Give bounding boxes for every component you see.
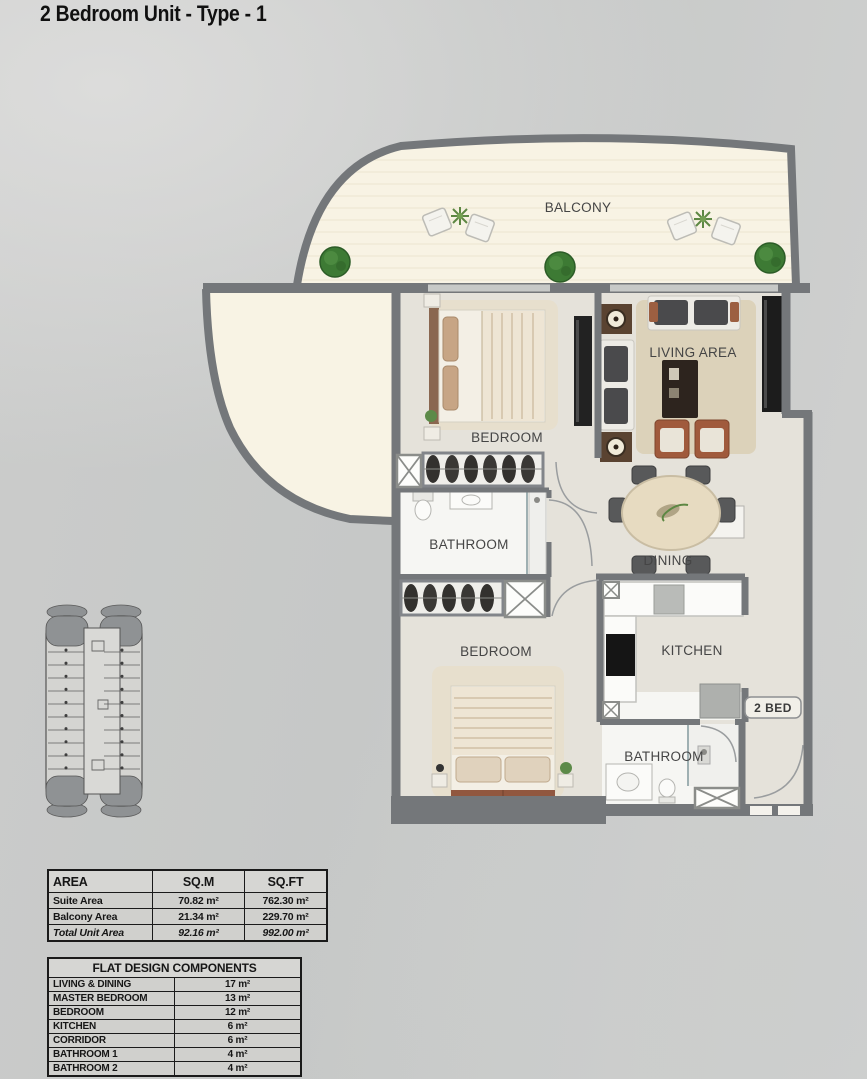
- side-table-lamp: [600, 304, 632, 334]
- row-label: Total Unit Area: [48, 925, 153, 942]
- component-value: 6 m²: [175, 1020, 302, 1034]
- kitchen-label: KITCHEN: [661, 643, 722, 658]
- component-value: 4 m²: [175, 1062, 302, 1077]
- component-label: LIVING & DINING: [48, 978, 175, 992]
- component-label: BATHROOM 2: [48, 1062, 175, 1077]
- sqm-header: SQ.M: [153, 870, 245, 893]
- wardrobe: [401, 581, 503, 615]
- row-sqft: 762.30 m²: [245, 893, 328, 909]
- floor-plan-page: { "title": "2 Bedroom Unit - Type - 1", …: [0, 0, 867, 1079]
- living-area: LIVING AREA: [600, 296, 782, 462]
- stove: [606, 634, 635, 676]
- table-row: MASTER BEDROOM 13 m²: [48, 992, 301, 1006]
- row-sqm: 92.16 m²: [153, 925, 245, 942]
- component-value: 4 m²: [175, 1048, 302, 1062]
- component-value: 12 m²: [175, 1006, 302, 1020]
- unit-tag: 2 BED: [745, 697, 801, 718]
- nightstand: [424, 427, 440, 440]
- nightstand: [558, 774, 573, 787]
- unit-tag-label: 2 BED: [754, 701, 792, 715]
- coffee-table: [662, 360, 698, 418]
- area-header: AREA: [48, 870, 153, 893]
- plant-icon: [451, 207, 469, 225]
- component-value: 17 m²: [175, 978, 302, 992]
- plant-icon: [694, 210, 712, 228]
- table-row: CORRIDOR 6 m²: [48, 1034, 301, 1048]
- bathroom2-label: BATHROOM: [624, 749, 703, 764]
- component-label: KITCHEN: [48, 1020, 175, 1034]
- armchair: [655, 420, 689, 458]
- components-title: FLAT DESIGN COMPONENTS: [48, 958, 301, 978]
- key-plan: [46, 605, 142, 817]
- row-label: Suite Area: [48, 893, 153, 909]
- plant-icon: [560, 762, 572, 774]
- bedroom-2: BEDROOM: [432, 644, 573, 803]
- window-strip: [610, 285, 778, 292]
- row-sqm: 21.34 m²: [153, 909, 245, 925]
- bedroom2-label: BEDROOM: [460, 644, 532, 659]
- toilet: [659, 779, 675, 797]
- bed: [451, 686, 555, 803]
- master-bedroom-label: BEDROOM: [471, 430, 543, 445]
- entry-threshold: [750, 806, 772, 815]
- component-label: BEDROOM: [48, 1006, 175, 1020]
- side-room: [206, 292, 392, 520]
- table-row-total: Total Unit Area 92.16 m² 992.00 m²: [48, 925, 327, 942]
- components-table: FLAT DESIGN COMPONENTS LIVING & DINING 1…: [47, 957, 302, 1077]
- plant-icon: [320, 247, 350, 277]
- table-row: BEDROOM 12 m²: [48, 1006, 301, 1020]
- plant-icon: [755, 243, 785, 273]
- table-row: LIVING & DINING 17 m²: [48, 978, 301, 992]
- entry-threshold: [778, 806, 800, 815]
- wardrobe: [423, 453, 543, 486]
- row-label: Balcony Area: [48, 909, 153, 925]
- bed: [429, 308, 545, 424]
- component-label: MASTER BEDROOM: [48, 992, 175, 1006]
- row-sqm: 70.82 m²: [153, 893, 245, 909]
- kitchen-sink: [654, 585, 684, 614]
- nightstand: [424, 294, 440, 307]
- table-row: KITCHEN 6 m²: [48, 1020, 301, 1034]
- component-label: CORRIDOR: [48, 1034, 175, 1048]
- window-strip: [428, 285, 550, 292]
- component-value: 6 m²: [175, 1034, 302, 1048]
- table-row: Balcony Area 21.34 m² 229.70 m²: [48, 909, 327, 925]
- fridge: [700, 684, 740, 718]
- sqft-header: SQ.FT: [245, 870, 328, 893]
- row-sqft: 992.00 m²: [245, 925, 328, 942]
- side-table-lamp: [600, 432, 632, 462]
- plant-icon: [545, 252, 575, 282]
- component-label: BATHROOM 1: [48, 1048, 175, 1062]
- component-value: 13 m²: [175, 992, 302, 1006]
- dining-label: DINING: [643, 553, 692, 568]
- area-table: AREA SQ.M SQ.FT Suite Area 70.82 m² 762.…: [47, 869, 328, 942]
- area-table-header-row: AREA SQ.M SQ.FT: [48, 870, 327, 893]
- living-area-label: LIVING AREA: [649, 345, 736, 360]
- balcony-label: BALCONY: [545, 200, 612, 215]
- table-row: Suite Area 70.82 m² 762.30 m²: [48, 893, 327, 909]
- components-table-header-row: FLAT DESIGN COMPONENTS: [48, 958, 301, 978]
- plant-icon: [425, 410, 437, 422]
- table-row: BATHROOM 2 4 m²: [48, 1062, 301, 1077]
- table-row: BATHROOM 1 4 m²: [48, 1048, 301, 1062]
- armchair: [695, 420, 729, 458]
- shower: [529, 492, 546, 576]
- nightstand: [432, 774, 447, 787]
- row-sqft: 229.70 m²: [245, 909, 328, 925]
- bathroom1-label: BATHROOM: [429, 537, 508, 552]
- shower-head: [534, 497, 540, 503]
